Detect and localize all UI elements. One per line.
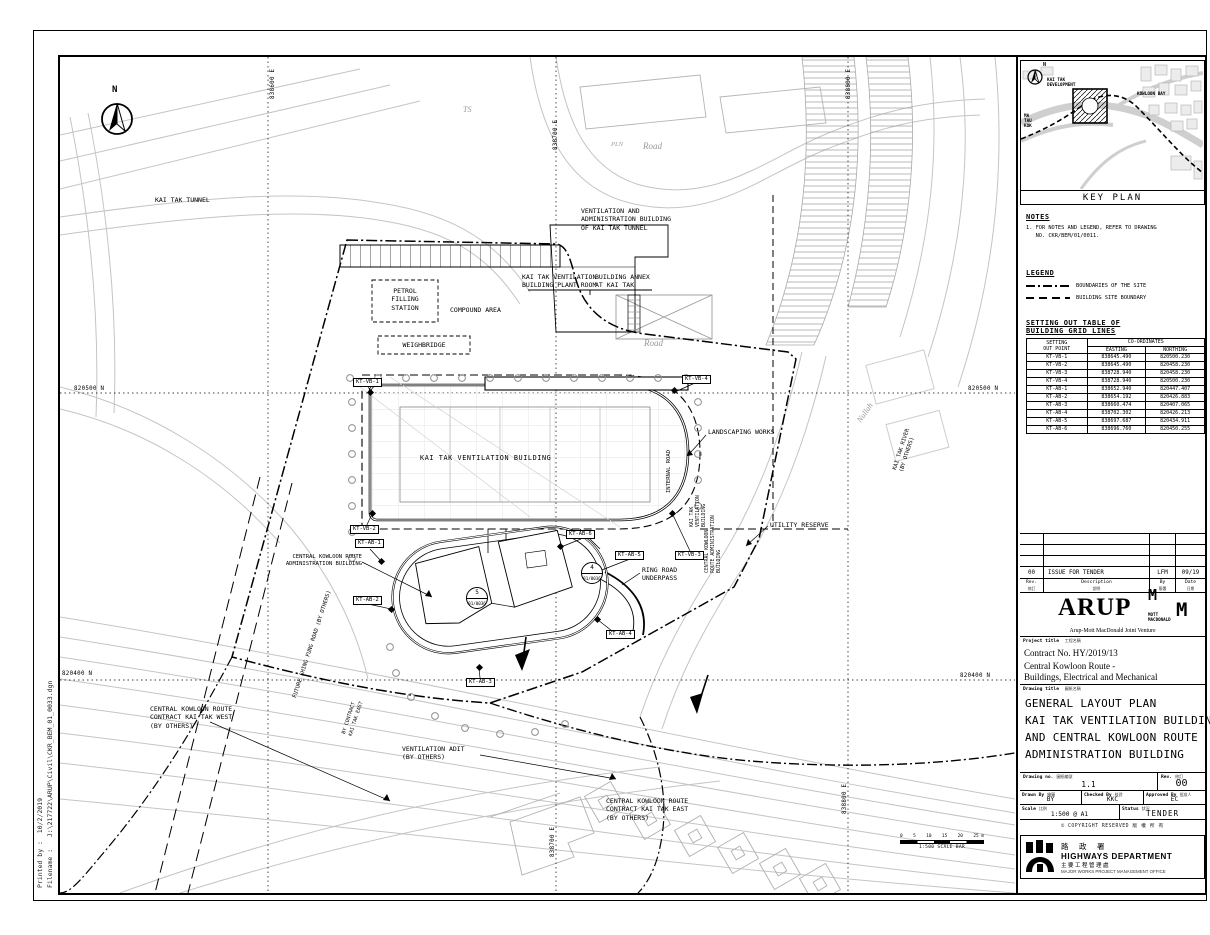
section-4-number: 4 (582, 563, 602, 574)
scale-bar: 0 5 10 15 20 25 m 1:500 SCALE BAR (900, 834, 984, 850)
vent-admin-building-label: VENTILATION AND ADMINISTRATION BUILDING … (581, 207, 671, 232)
section-4-ref: 01/0036 (582, 574, 602, 583)
north-letter: N (112, 85, 117, 95)
internal-road-label: INTERNAL ROAD (666, 450, 673, 493)
main-building-label: KAI TAK VENTILATION BUILDING (420, 454, 551, 463)
status-value: TENDER (1120, 809, 1205, 818)
point-kt-ab-6: KT-AB-6 (566, 530, 595, 539)
setting-out-section: SETTING OUT TABLE OF BUILDING GRID LINES… (1026, 319, 1205, 434)
checked-by-value: KKC (1082, 796, 1143, 803)
scale-tick: 0 (900, 834, 903, 839)
project-name: Central Kowloon Route - Buildings, Elect… (1020, 658, 1205, 683)
revision-table: 00 ISSUE FOR TENDER LFM 09/19 Rev.修訂 Des… (1020, 533, 1205, 593)
point-kt-vb-1: KT-VB-1 (353, 378, 382, 387)
revision-by: LFM (1150, 567, 1176, 578)
grid-838700e-bottom: 838700 E (550, 827, 556, 857)
point-kt-vb-3: KT-VB-3 (675, 551, 704, 560)
by-col-header: By (1160, 580, 1166, 585)
description-col-header: Description (1081, 580, 1111, 585)
scale-value: 1:500 @ A1 (1020, 811, 1119, 818)
legend-row-site-boundary: BOUNDARIES OF THE SITE (1026, 283, 1201, 289)
scale-tick: 20 (958, 834, 963, 839)
revision-description: ISSUE FOR TENDER (1044, 567, 1150, 578)
scale-status-row: Scale比例 1:500 @ A1 Status狀況 TENDER (1020, 805, 1205, 820)
printed-by: Printed by : 10/2/2019 (36, 798, 44, 888)
legend-site-boundary-label: BOUNDARIES OF THE SITE (1076, 283, 1146, 289)
revision-rev: 00 (1020, 567, 1044, 578)
kai-tak-tunnel-label: KAI TAK TUNNEL (155, 196, 210, 204)
legend-heading: LEGEND (1026, 269, 1201, 277)
notes-section: NOTES 1. FOR NOTES AND LEGEND, REFER TO … (1026, 213, 1157, 241)
firm-block: ARUP M M MOTT MACDONALD Arup-Mott MacDon… (1020, 586, 1205, 637)
drawing-title: GENERAL LAYOUT PLAN KAI TAK VENTILATION … (1020, 692, 1205, 763)
ckr-east-label: CENTRAL KOWLOON ROUTE CONTRACT KAI TAK E… (606, 797, 688, 822)
plant-room-label: KAI TAK VENTILATION BUILDING PLANT ROOM (522, 273, 596, 290)
scale-bar-line (900, 840, 984, 844)
table-row: KT-VB-1838645.490820500.230 (1027, 354, 1205, 362)
key-plan-north-letter: N (1043, 63, 1046, 69)
ab-side-label: CENTRAL KOWLOON ROUTE ADMINISTRATION BUI… (705, 515, 724, 573)
key-plan-map: N KAI TAK DEVELOPMENT KOWLOON BAY MA TAU… (1021, 61, 1203, 189)
drawing-title-label-cn: 圖紙名稱 (1065, 686, 1081, 691)
scale-tick: 15 (942, 834, 947, 839)
ckr-west-label: CENTRAL KOWLOON ROUTE CONTRACT KAI TAK W… (150, 705, 232, 730)
grid-820500n-right: 820500 N (968, 386, 998, 392)
copyright-cn: 版 權 所 有 (1132, 824, 1163, 829)
admin-building-label: CENTRAL KOWLOON ROUTE ADMINISTRATION BUI… (266, 554, 362, 568)
point-kt-vb-2: KT-VB-2 (350, 525, 379, 534)
project-block: Project title 工程名稱 Contract No. HY/2019/… (1020, 637, 1205, 685)
col-easting: EASTING (1087, 346, 1146, 354)
scale-tick: 25 m (973, 834, 984, 839)
table-row: KT-VB-4838728.940820500.230 (1027, 378, 1205, 386)
print-caption: Printed by : 10/2/2019 Filename : J:\217… (36, 681, 56, 888)
table-row: KT-AB-1838652.940820447.407 (1027, 386, 1205, 394)
drawing-no-label-cn: 圖紙編號 (1056, 774, 1072, 779)
scale-tick: 10 (926, 834, 931, 839)
filename: Filename : J:\217722\ARUP\Civil\CKR_BEM_… (46, 681, 54, 888)
grid-820400n-left: 820400 N (62, 671, 92, 677)
site-plan: N KAI TAK TUNNEL TS PLN Road Road VENTIL… (60, 57, 1015, 893)
section-5-ref: 01/0036 (467, 599, 487, 608)
hyd-office-en: MAJOR WORKS PROJECT MANAGEMENT OFFICE (1061, 869, 1172, 874)
grid-838800e-bottom: 838800 E (842, 784, 848, 814)
section-marker-5: 5 01/0036 (466, 587, 488, 609)
drawn-by-value: BY (1020, 796, 1081, 803)
grid-820500n-left: 820500 N (74, 386, 104, 392)
utility-reserve-label: UTILITY RESERVE (770, 521, 829, 529)
table-row: KT-AB-2838654.192820426.883 (1027, 394, 1205, 402)
notes-heading: NOTES (1026, 213, 1157, 221)
arup-logo: ARUP (1058, 594, 1131, 622)
col-coordinates: CO-ORDINATES (1087, 339, 1204, 347)
approved-by-value: EC (1144, 796, 1205, 803)
point-kt-ab-3: KT-AB-3 (466, 678, 495, 687)
hyd-office-cn: 主要工程管理處 (1061, 861, 1172, 869)
revision-date: 09/19 (1176, 567, 1205, 578)
table-row: KT-AB-3838660.474820407.065 (1027, 402, 1205, 410)
rev-value: 00 (1158, 778, 1205, 789)
legend-building-boundary-label: BUILDING SITE BOUNDARY (1076, 295, 1146, 301)
copyright-icon: © (1061, 824, 1064, 829)
key-plan-box: N KAI TAK DEVELOPMENT KOWLOON BAY MA TAU… (1020, 60, 1205, 205)
dashdot-line-symbol (1026, 285, 1070, 287)
hyd-logo (1024, 840, 1056, 874)
section-marker-4: 4 01/0036 (581, 562, 603, 584)
key-plan-ma-tau-kok: MA TAU KOK (1024, 115, 1032, 130)
legend-section: LEGEND BOUNDARIES OF THE SITE BUILDING S… (1026, 269, 1201, 301)
admin-building-outline (385, 520, 614, 661)
mott-m2-icon: M (1176, 599, 1187, 621)
revision-empty-row (1020, 534, 1205, 545)
scale-bar-caption: 1:500 SCALE BAR (900, 845, 984, 850)
rev-col-header: Rev. (1026, 580, 1037, 585)
main-building-outline (360, 377, 688, 527)
viaduct-bands (766, 57, 913, 345)
landscaping-label: LANDSCAPING WORKS (708, 428, 775, 436)
road-label-top: Road (643, 141, 662, 153)
col-northing: NORTHING (1146, 346, 1205, 354)
site-plan-canvas (60, 57, 1015, 893)
project-title-label: Project title (1023, 639, 1059, 644)
road-label-mid: Road (644, 338, 663, 350)
point-kt-ab-5: KT-AB-5 (615, 551, 644, 560)
mott-m-icon: M (1148, 586, 1157, 604)
mott-name: MOTT MACDONALD (1148, 612, 1171, 622)
jv-caption: Arup-Mott MacDonald Joint Venture (1020, 628, 1205, 634)
project-title-label-cn: 工程名稱 (1065, 638, 1081, 643)
table-row: KT-AB-6838696.760820450.255 (1027, 426, 1205, 434)
hyd-block: 路 政 署 HIGHWAYS DEPARTMENT 主要工程管理處 MAJOR … (1020, 835, 1205, 879)
key-plan-kowloon-bay: KOWLOON BAY (1137, 93, 1165, 98)
table-row: KT-AB-5838697.687820434.911 (1027, 418, 1205, 426)
vent-adit-label: VENTILATION ADIT (BY OTHERS) (402, 745, 465, 762)
ts-label: TS (463, 105, 471, 115)
setting-out-table: SETTING OUT POINT CO-ORDINATES EASTING N… (1026, 338, 1205, 434)
col-setting-out-point: SETTING OUT POINT (1027, 339, 1088, 354)
contract-no: Contract No. HY/2019/13 (1020, 644, 1205, 658)
ring-road-underpass-label: RING ROAD UNDERPASS (642, 566, 677, 583)
point-kt-ab-4: KT-AB-4 (606, 630, 635, 639)
drawing-number-row: Drawing no.圖紙編號 1.1 Rev.修訂 00 (1020, 773, 1205, 791)
grid-838700e-top: 838700 E (553, 120, 559, 150)
drawing-no-value: 1.1 (1020, 780, 1157, 789)
grid-820400n-right: 820400 N (960, 673, 990, 679)
revision-empty-row (1020, 545, 1205, 556)
grid-838800e-top: 838800 E (846, 69, 852, 99)
drawing-title-label: Drawing title (1023, 687, 1059, 692)
revision-empty-row (1020, 556, 1205, 567)
building-annex-label: BUILDING ANNEX AT KAI TAK (595, 273, 650, 290)
north-arrow (102, 103, 132, 134)
compound-area-label: COMPOUND AREA (450, 306, 501, 314)
dashed-line-symbol (1026, 297, 1070, 299)
hyd-name-cn: 路 政 署 (1061, 841, 1172, 852)
copyright-line: © COPYRIGHT RESERVED 版 權 所 有 (1020, 822, 1205, 829)
weighbridge-label: WEIGHBRIDGE (390, 341, 458, 349)
drawing-title-block: Drawing title 圖紙名稱 GENERAL LAYOUT PLAN K… (1020, 685, 1205, 773)
grid-838600e-top: 838600 E (270, 69, 276, 99)
point-kt-ab-2: KT-AB-2 (353, 596, 382, 605)
table-row: KT-VB-2838645.490820458.230 (1027, 362, 1205, 370)
scale-tick: 5 (913, 834, 916, 839)
flow-arrows (515, 637, 708, 714)
petrol-station-label: PETROL FILLING STATION (384, 287, 426, 312)
revision-data-row: 00 ISSUE FOR TENDER LFM 09/19 (1020, 567, 1205, 579)
table-row: KT-AB-4838702.302820426.213 (1027, 410, 1205, 418)
key-plan-kai-tak-dev: KAI TAK DEVELOPMENT (1047, 79, 1075, 89)
point-kt-ab-1: KT-AB-1 (355, 539, 384, 548)
drawing-sheet: { "sheet": { "printed_by": "Printed by :… (0, 0, 1210, 935)
pln-label: PLN (611, 141, 623, 149)
signatures-row: Drawn By繪圖 BY Checked By核對 KKC Approved … (1020, 791, 1205, 805)
date-col-header: Date (1185, 580, 1196, 585)
notes-item: 1. FOR NOTES AND LEGEND, REFER TO DRAWIN… (1026, 225, 1157, 241)
hyd-name-en: HIGHWAYS DEPARTMENT (1061, 852, 1172, 861)
legend-row-building-boundary: BUILDING SITE BOUNDARY (1026, 295, 1201, 301)
table-row: KT-VB-3838728.940820458.230 (1027, 370, 1205, 378)
setting-out-heading: SETTING OUT TABLE OF BUILDING GRID LINES (1026, 319, 1205, 335)
section-5-number: 5 (467, 588, 487, 599)
title-block-panel: N KAI TAK DEVELOPMENT KOWLOON BAY MA TAU… (1016, 57, 1205, 893)
point-kt-vb-4: KT-VB-4 (682, 375, 711, 384)
key-plan-title: KEY PLAN (1021, 190, 1204, 204)
copyright-en: COPYRIGHT RESERVED (1068, 824, 1129, 829)
scale-bar-ticks: 0 5 10 15 20 25 m (900, 834, 984, 839)
